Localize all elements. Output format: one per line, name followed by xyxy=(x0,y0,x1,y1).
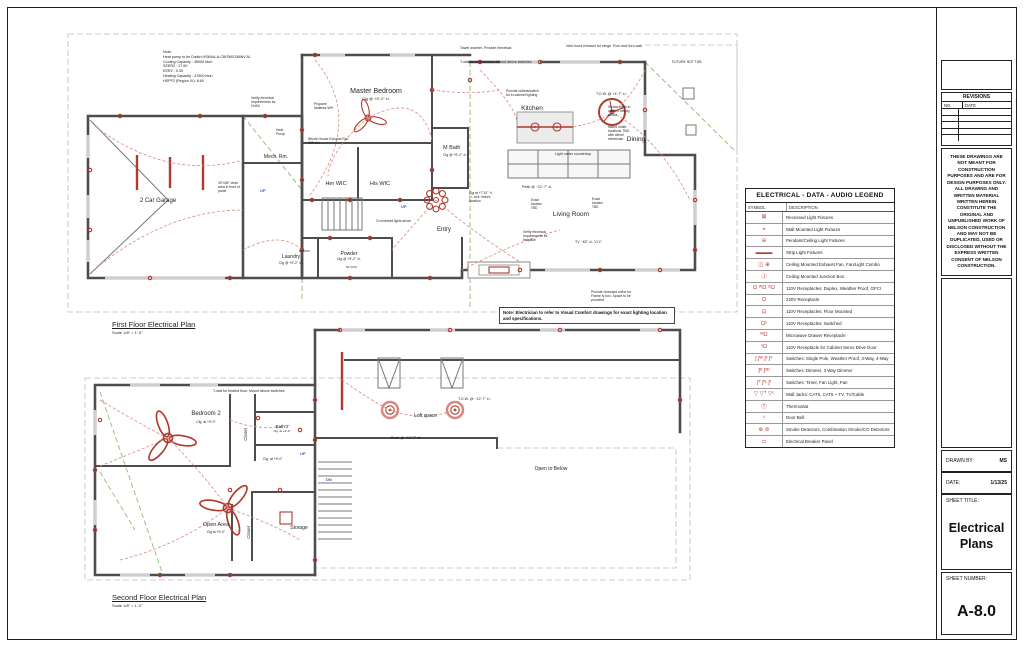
switches-dimmer-icon: ʃᴰ ʃ³ᴰ xyxy=(746,365,783,376)
legend-row-recessed-light: ⊠Recessed Light Fixtures xyxy=(746,212,894,224)
note-island-outlets: Island outlet locations TBD with client/… xyxy=(608,125,629,141)
revisions-date-header: DATE xyxy=(963,102,978,108)
date-field: DATE: 1/13/25 xyxy=(941,472,1012,494)
legend-description: 110V Receptacles: Floor Mounted xyxy=(783,309,852,314)
fireplace-tv-niche xyxy=(468,262,530,278)
switches-icon: ʃ ʃᵂ ʃ³ ʃ⁴ xyxy=(746,354,783,365)
note-peak-loft: Peak @ ~12'-7" ±/- xyxy=(391,436,421,440)
legend-description: Smoke Detectors, Combination Smoke/CO De… xyxy=(783,427,889,432)
second-floor-plan-scale: Scale 1/8" = 1'-0" xyxy=(112,604,143,609)
legend-description: 110V Receptacle for Cabinet Servo Drive … xyxy=(783,345,877,350)
breaker-panel-icon: ▭ xyxy=(746,436,783,447)
legend-row-pendant-ceiling-light: ⊖Pendant/Ceiling Light Fixtures xyxy=(746,236,894,248)
receptacle-220-icon: Ω xyxy=(746,295,783,306)
sheet-number-value: A-8.0 xyxy=(942,603,1011,621)
first-floor-plan-scale: Scale 1/8" = 1'-0" xyxy=(112,331,143,336)
sheet-title-value: Electrical Plans xyxy=(942,521,1011,552)
note-fireplace: Verify electrical requirements for firep… xyxy=(523,230,548,242)
legend-description-header: DESCRIPTION xyxy=(787,203,820,211)
note-verify-hvac: Verify electrical requirements for HVAC xyxy=(251,96,276,108)
ceiling-exhaust-fan-icon: ◫ ⊕ xyxy=(746,259,783,270)
second-floor-plan-title: Second Floor Electrical Plan xyxy=(112,593,206,602)
drawing-sheet: Master Bedroom Clg @ +9'-2" ±/- Kitchen … xyxy=(0,0,1024,647)
note-cfm-2: 50 CFM xyxy=(346,266,357,270)
legend-description: 110V Receptacles: Duplex, Weather Proof,… xyxy=(783,286,881,291)
title-block-empty-top xyxy=(941,60,1012,90)
note-peak-ff: Peak @ ~12'-7" ±/- xyxy=(522,185,552,189)
pendant-ceiling-light-icon: ⊖ xyxy=(746,236,783,247)
legend-description: Wall Jacks: CAT5, CAT5 + TV, TV/Cable xyxy=(783,392,864,397)
legend-row-strip-light: ▬▬▬Strip Light Fixtures xyxy=(746,247,894,259)
legend-row-junction-box: ⒿCeiling Mounted Junction Box xyxy=(746,271,894,283)
room-label-closet-1: Closet xyxy=(243,428,248,441)
room-label-kitchen: Kitchen xyxy=(521,105,543,113)
legend-rows: ⊠Recessed Light Fixtures◒Wall Mounted Li… xyxy=(746,212,894,447)
note-tv: TV ~62" ±/- V.I.F. xyxy=(575,240,602,244)
sheet-title-label: SHEET TITLE: xyxy=(942,495,1011,507)
ceiling-note-powder: Clg @ +9'-2" ±/- xyxy=(337,257,361,261)
revisions-table: REVISIONS NO. DATE xyxy=(941,92,1012,146)
drawn-by-label: DRAWN BY: xyxy=(946,458,974,464)
legend-row-smoke-detector: ⊛ ⊜Smoke Detectors, Combination Smoke/CO… xyxy=(746,424,894,436)
note-whole-house-fan: Whole House Exhaust Fan 300 cfm xyxy=(308,137,348,145)
legend-row-receptacle-floor: ⊡110V Receptacles: Floor Mounted xyxy=(746,306,894,318)
legend-row-wall-jacks: ▽ ▽ᵀ ▽ᶜWall Jacks: CAT5, CAT5 + TV, TV/C… xyxy=(746,389,894,401)
revisions-header-row: NO. DATE xyxy=(942,102,1011,109)
up-marker-sf: UP xyxy=(300,452,306,457)
legend-row-cabinet-servo-receptacle: ˢΩ110V Receptacle for Cabinet Servo Driv… xyxy=(746,342,894,354)
date-label: DATE: xyxy=(946,480,960,486)
legend-row-receptacle-switched: Ωˢ110V Receptacles: Switched xyxy=(746,318,894,330)
revisions-title: REVISIONS xyxy=(942,93,1011,102)
legend-description: Switches: Single Pole, Weather Proof, 3-… xyxy=(783,356,889,361)
switches-timer-fan-icon: ʃᵀ ʃᶠᴸ ʃᶠ xyxy=(746,377,783,388)
note-panel-clearance: 30"x36" clear area in front of panel xyxy=(218,181,240,193)
ceiling-note-m-bath: Clg @ +9'-2" ±/- xyxy=(443,153,467,157)
plan-drawing-area: Master Bedroom Clg @ +9'-2" ±/- Kitchen … xyxy=(8,8,936,637)
room-label-bedroom2: Bedroom 2 xyxy=(191,411,220,418)
legend-row-door-bell: ♀Door Bell xyxy=(746,413,894,425)
up-marker-ff-2: UP xyxy=(401,205,407,210)
note-tstat-ff: T-stat for heated floor. Mount above swi… xyxy=(460,60,532,64)
ceiling-note-laundry: Clg @ +9'-2" ±/- xyxy=(279,261,303,265)
room-label-entry: Entry xyxy=(437,227,451,234)
ceiling-note-bedroom2: Clg. at +9'-0" xyxy=(196,420,215,424)
legend-row-breaker-panel: ▭Electrical Breaker Panel xyxy=(746,436,894,447)
note-recessed-above: To recessed lights above xyxy=(376,220,411,224)
note-tow-kitchen: T.O.W. @ +4'-7" ±/- xyxy=(596,92,627,96)
room-label-loft: Loft space xyxy=(414,413,437,419)
note-future-hot-tub: FUTURE HOT TUB xyxy=(672,60,701,64)
legend-description: Wall Mounted Light Fixtures xyxy=(783,227,840,232)
title-block: REVISIONS NO. DATE THESE DRAWINGS ARE NO… xyxy=(936,8,1016,639)
note-exact-location-1: Exact location TBD xyxy=(531,199,542,211)
revisions-no-header: NO. xyxy=(942,102,963,108)
loft-skylights xyxy=(378,358,463,388)
switch-leg-arcs-sf xyxy=(100,380,455,560)
note-tstat-sf: T-stat for heated floor. Mount above swi… xyxy=(213,389,285,393)
note-heat-pump: Heat Pump xyxy=(276,128,285,136)
ceiling-note-hall: Clg. at +9'-0" xyxy=(263,457,282,461)
note-cfm-1: 50 CFM xyxy=(299,250,310,254)
microwave-receptacle-icon: ᴹΩ xyxy=(746,330,783,341)
note-tv-niche: Provide recessed niche for Frame tv box.… xyxy=(591,290,631,302)
legend-description: 110V Receptacles: Switched xyxy=(783,321,842,326)
sheet-title-box: SHEET TITLE: Electrical Plans xyxy=(941,494,1012,570)
note-cabinet-lighting: Provide outlets/switch for in-cabinet li… xyxy=(506,89,539,97)
note-clg-fixture: Clg at +7'10" +/- ±/- at lt. fixture loc… xyxy=(469,191,493,203)
legend-description: Strip Light Fixtures xyxy=(783,250,823,255)
legend-description: Pendant/Ceiling Light Fixtures xyxy=(783,238,845,243)
drawn-by-field: DRAWN BY: MS xyxy=(941,450,1012,472)
room-label-his-wic: His WIC xyxy=(370,181,390,188)
note-propane-wh: Propane tankless WH xyxy=(314,102,333,110)
legend-symbol-header: SYMBOL xyxy=(746,203,787,211)
room-label-mech-rm: Mech. Rm. xyxy=(264,154,288,160)
strip-light-icon: ▬▬▬ xyxy=(746,247,783,258)
up-marker-ff-1: UP xyxy=(260,189,266,194)
ceiling-note-bath2: Clg. at +9'-0" xyxy=(273,430,290,434)
note-towel-warmer: Towel warmer. Provide electrical xyxy=(460,46,511,50)
receptacle-floor-icon: ⊡ xyxy=(746,306,783,317)
second-floor-plan-drawing xyxy=(85,328,690,580)
title-block-empty-middle xyxy=(941,278,1012,448)
room-label-living-room: Living Room xyxy=(553,211,589,219)
room-label-storage: Storage xyxy=(290,525,308,531)
note-exact-location-2: Exact location TBD xyxy=(592,198,603,210)
room-label-laundry: Laundry xyxy=(282,254,300,260)
disclaimer-box: THESE DRAWINGS ARE NOT MEANT FOR CONSTRU… xyxy=(941,148,1012,276)
revision-row xyxy=(942,135,1011,141)
legend-row-switches-dimmer: ʃᴰ ʃ³ᴰSwitches: Dimmer, 3 Way Dimmer xyxy=(746,365,894,377)
drawn-by-value: MS xyxy=(1000,458,1008,464)
legend-description: Thermostat xyxy=(783,404,808,409)
legend-description: Microwave Drawer Receptacle xyxy=(783,333,846,338)
electrician-note-box: Note: Electrician to refer to Visual Com… xyxy=(499,307,675,324)
legend-row-receptacle-220: Ω220V Receptacle xyxy=(746,295,894,307)
wall-mounted-light-icon: ◒ xyxy=(746,224,783,235)
room-label-open-area: Open Area xyxy=(203,522,229,529)
receptacle-switched-icon: Ωˢ xyxy=(746,318,783,329)
legend-description: Electrical Breaker Panel xyxy=(783,439,833,444)
legend-description: Ceiling Mounted Exhaust Fan, Fan/Light C… xyxy=(783,262,880,267)
legend-description: Recessed Light Fixtures xyxy=(783,215,833,220)
dn-marker-sf: DN xyxy=(326,478,332,483)
legend-row-microwave-receptacle: ᴹΩMicrowave Drawer Receptacle xyxy=(746,330,894,342)
note-tow-loft: T.O.W. @ ~12'-7" ±/- xyxy=(458,397,491,401)
junction-box-icon: Ⓙ xyxy=(746,271,783,282)
master-ceiling-fan-icon xyxy=(351,97,391,140)
room-label-m-bath: M Bath xyxy=(443,145,460,152)
legend-description: Door Bell xyxy=(783,415,804,420)
legend-row-thermostat: ⓉThermostat xyxy=(746,401,894,413)
legend-row-switches-timer-fan: ʃᵀ ʃᶠᴸ ʃᶠSwitches: Timer, Fan Light, Fan xyxy=(746,377,894,389)
legend-description: 220V Receptacle xyxy=(783,297,819,302)
room-label-dining: Dining xyxy=(627,136,645,144)
sheet-number-label: SHEET NUMBER: xyxy=(942,573,1011,585)
room-label-open-to-below: Open to Below xyxy=(535,466,568,472)
door-bell-icon: ♀ xyxy=(746,413,783,424)
date-value: 1/13/25 xyxy=(990,480,1007,486)
legend-row-ceiling-exhaust-fan: ◫ ⊕Ceiling Mounted Exhaust Fan, Fan/Ligh… xyxy=(746,259,894,271)
receptacle-icons-sf xyxy=(93,328,681,576)
legend-description: Ceiling Mounted Junction Box xyxy=(783,274,844,279)
legend-title: ELECTRICAL - DATA - AUDIO LEGEND xyxy=(746,189,894,203)
legend-row-wall-mounted-light: ◒Wall Mounted Light Fixtures xyxy=(746,224,894,236)
room-label-closet-2: Closet xyxy=(246,526,251,539)
sheet-number-box: SHEET NUMBER: A-8.0 xyxy=(941,572,1012,635)
note-strobe-lights: Strobe lights in vaulted ceiling above xyxy=(608,105,630,117)
smoke-detector-icon: ⊛ ⊜ xyxy=(746,424,783,435)
legend-row-receptacle-110: Ω ᵂΩ ᴳΩ110V Receptacles: Duplex, Weather… xyxy=(746,283,894,295)
first-floor-plan-title: First Floor Electrical Plan xyxy=(112,320,195,329)
legend-header-row: SYMBOL DESCRIPTION xyxy=(746,203,894,212)
ceiling-note-master: Clg @ +9'-2" ±/- xyxy=(362,97,390,102)
room-label-her-wic: Her WIC xyxy=(325,181,346,188)
cabinet-servo-receptacle-icon: ˢΩ xyxy=(746,342,783,353)
wall-jacks-icon: ▽ ▽ᵀ ▽ᶜ xyxy=(746,389,783,400)
recessed-light-icon: ⊠ xyxy=(746,212,783,223)
legend-description: Switches: Dimmer, 3 Way Dimmer xyxy=(783,368,852,373)
receptacle-110-icon: Ω ᵂΩ ᴳΩ xyxy=(746,283,783,294)
legend-description: Switches: Timer, Fan Light, Fan xyxy=(783,380,848,385)
legend-row-switches: ʃ ʃᵂ ʃ³ ʃ⁴Switches: Single Pole, Weather… xyxy=(746,354,894,366)
disclaimer-text: THESE DRAWINGS ARE NOT MEANT FOR CONSTRU… xyxy=(942,149,1011,275)
electrical-legend: ELECTRICAL - DATA - AUDIO LEGEND SYMBOL … xyxy=(745,188,895,448)
room-label-garage: 2 Car Garage xyxy=(140,198,176,205)
ceiling-note-open-area: Clg at +9'-0" xyxy=(207,530,226,534)
open-area-ceiling-fan-icon xyxy=(196,481,263,544)
note-vent-hood: Vent hood exhaust for range. Run duct th… xyxy=(566,44,643,48)
thermostat-icon: Ⓣ xyxy=(746,401,783,412)
hvac-equipment-note: Note: Heat pump to be Daikin HSMVA-A-CB/… xyxy=(163,50,250,84)
note-under-counter-light: Light under countertop xyxy=(555,152,591,156)
